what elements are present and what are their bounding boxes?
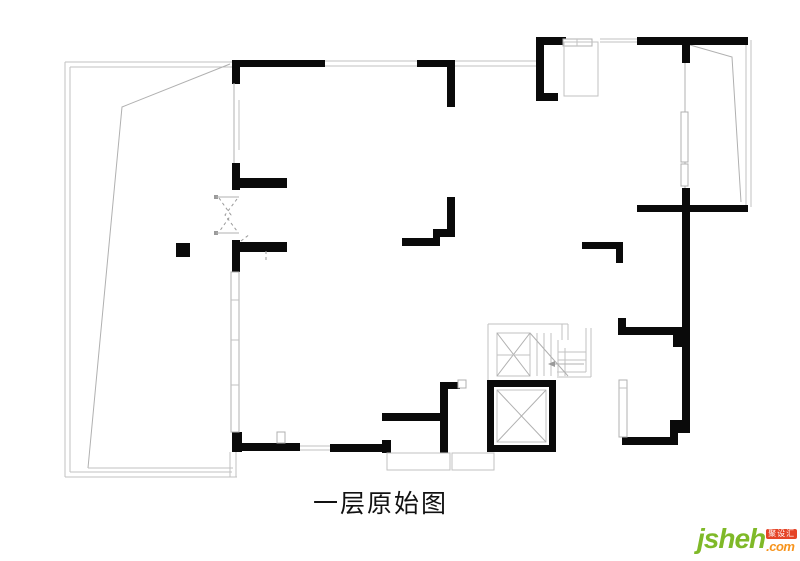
plan-title: 一层原始图: [313, 484, 448, 520]
staircase: [488, 324, 591, 380]
logo-badge: 聚设汇: [766, 529, 797, 539]
floor-plan-image: 一层原始图 jsheh 聚设汇 .com: [0, 0, 800, 561]
elevator-shaft: [487, 380, 556, 452]
jsheh-logo: jsheh 聚设汇 .com: [697, 525, 797, 553]
logo-tld-text: .com: [766, 540, 794, 553]
column: [176, 243, 190, 257]
floor-plan-drawing: [0, 0, 800, 561]
porch-outline: [387, 453, 494, 470]
logo-name-text: jsheh: [697, 525, 765, 553]
site-boundary: [65, 40, 751, 477]
logo-right-block: 聚设汇 .com: [766, 529, 797, 553]
